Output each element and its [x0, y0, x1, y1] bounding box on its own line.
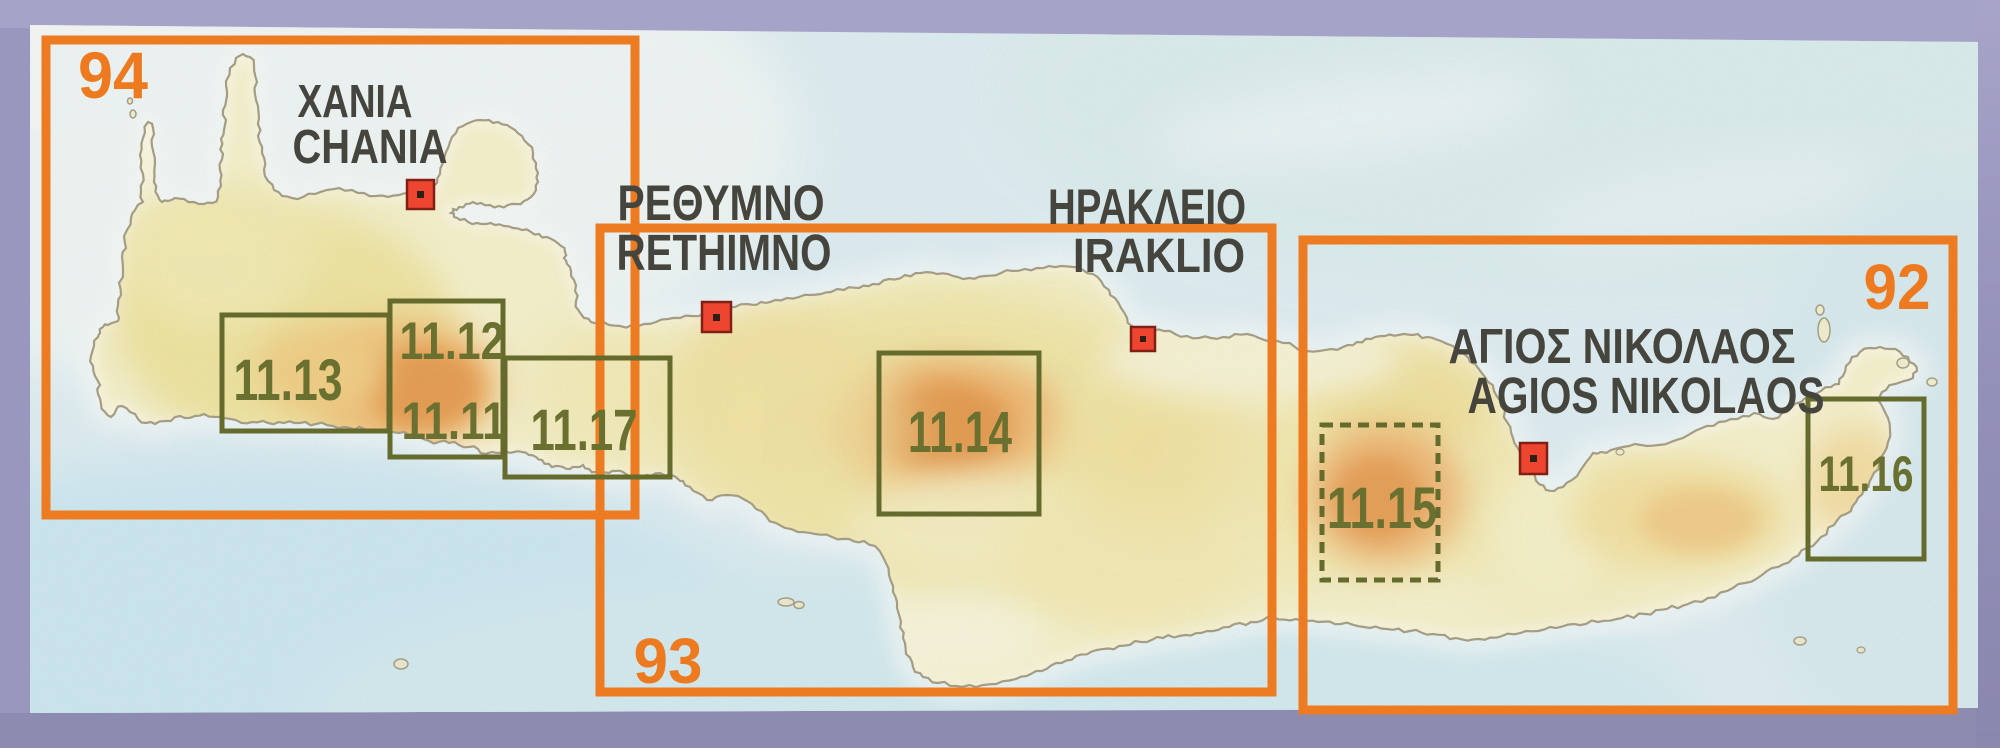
svg-text:93: 93 — [634, 625, 703, 697]
svg-text:11.16: 11.16 — [1819, 446, 1914, 502]
svg-text:IRAKLIO: IRAKLIO — [1073, 230, 1245, 283]
svg-text:11.14: 11.14 — [908, 400, 1012, 465]
svg-text:11.15: 11.15 — [1327, 476, 1437, 541]
svg-text:11.11: 11.11 — [402, 392, 507, 451]
svg-text:ΡΕΘΥΜΝΟ: ΡΕΘΥΜΝΟ — [618, 175, 825, 231]
svg-text:11.13: 11.13 — [234, 348, 343, 413]
svg-text:11.17: 11.17 — [531, 398, 638, 463]
svg-text:ΗΡΑΚΛΕΙΟ: ΗΡΑΚΛΕΙΟ — [1048, 179, 1246, 235]
svg-text:94: 94 — [78, 38, 148, 112]
svg-text:92: 92 — [1864, 251, 1931, 323]
svg-text:11.12: 11.12 — [400, 312, 505, 371]
svg-text:ΑΓΙΟΣ ΝΙΚΟΛΑΟΣ: ΑΓΙΟΣ ΝΙΚΟΛΑΟΣ — [1449, 320, 1796, 374]
svg-text:AGIOS NIKOLAOS: AGIOS NIKOLAOS — [1468, 367, 1825, 424]
svg-text:ΧΑΝΙΑ: ΧΑΝΙΑ — [298, 75, 413, 127]
svg-text:CHANIA: CHANIA — [293, 121, 448, 174]
svg-text:RETHIMNO: RETHIMNO — [617, 224, 832, 281]
